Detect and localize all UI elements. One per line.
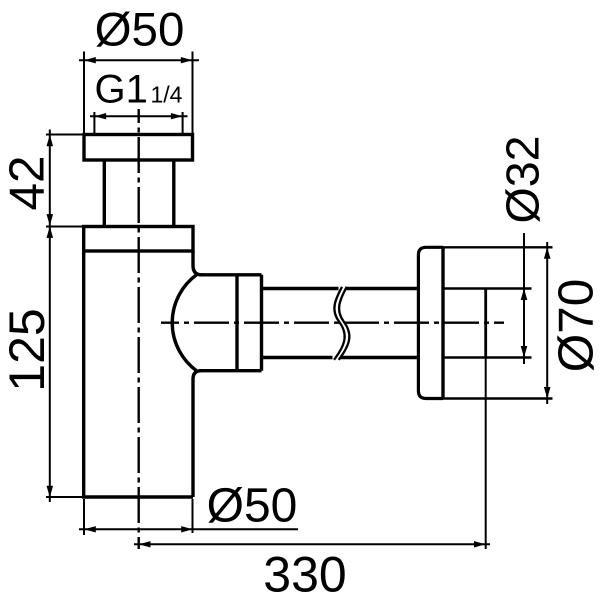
svg-text:Ø50: Ø50 bbox=[95, 3, 185, 56]
svg-text:42: 42 bbox=[0, 155, 55, 210]
svg-text:Ø70: Ø70 bbox=[549, 279, 600, 373]
svg-text:330: 330 bbox=[263, 547, 346, 600]
svg-text:1/4: 1/4 bbox=[151, 81, 183, 107]
svg-text:Ø32: Ø32 bbox=[497, 136, 549, 224]
svg-text:Ø50: Ø50 bbox=[207, 479, 298, 532]
svg-text:125: 125 bbox=[0, 308, 55, 391]
svg-text:G1: G1 bbox=[95, 67, 148, 111]
